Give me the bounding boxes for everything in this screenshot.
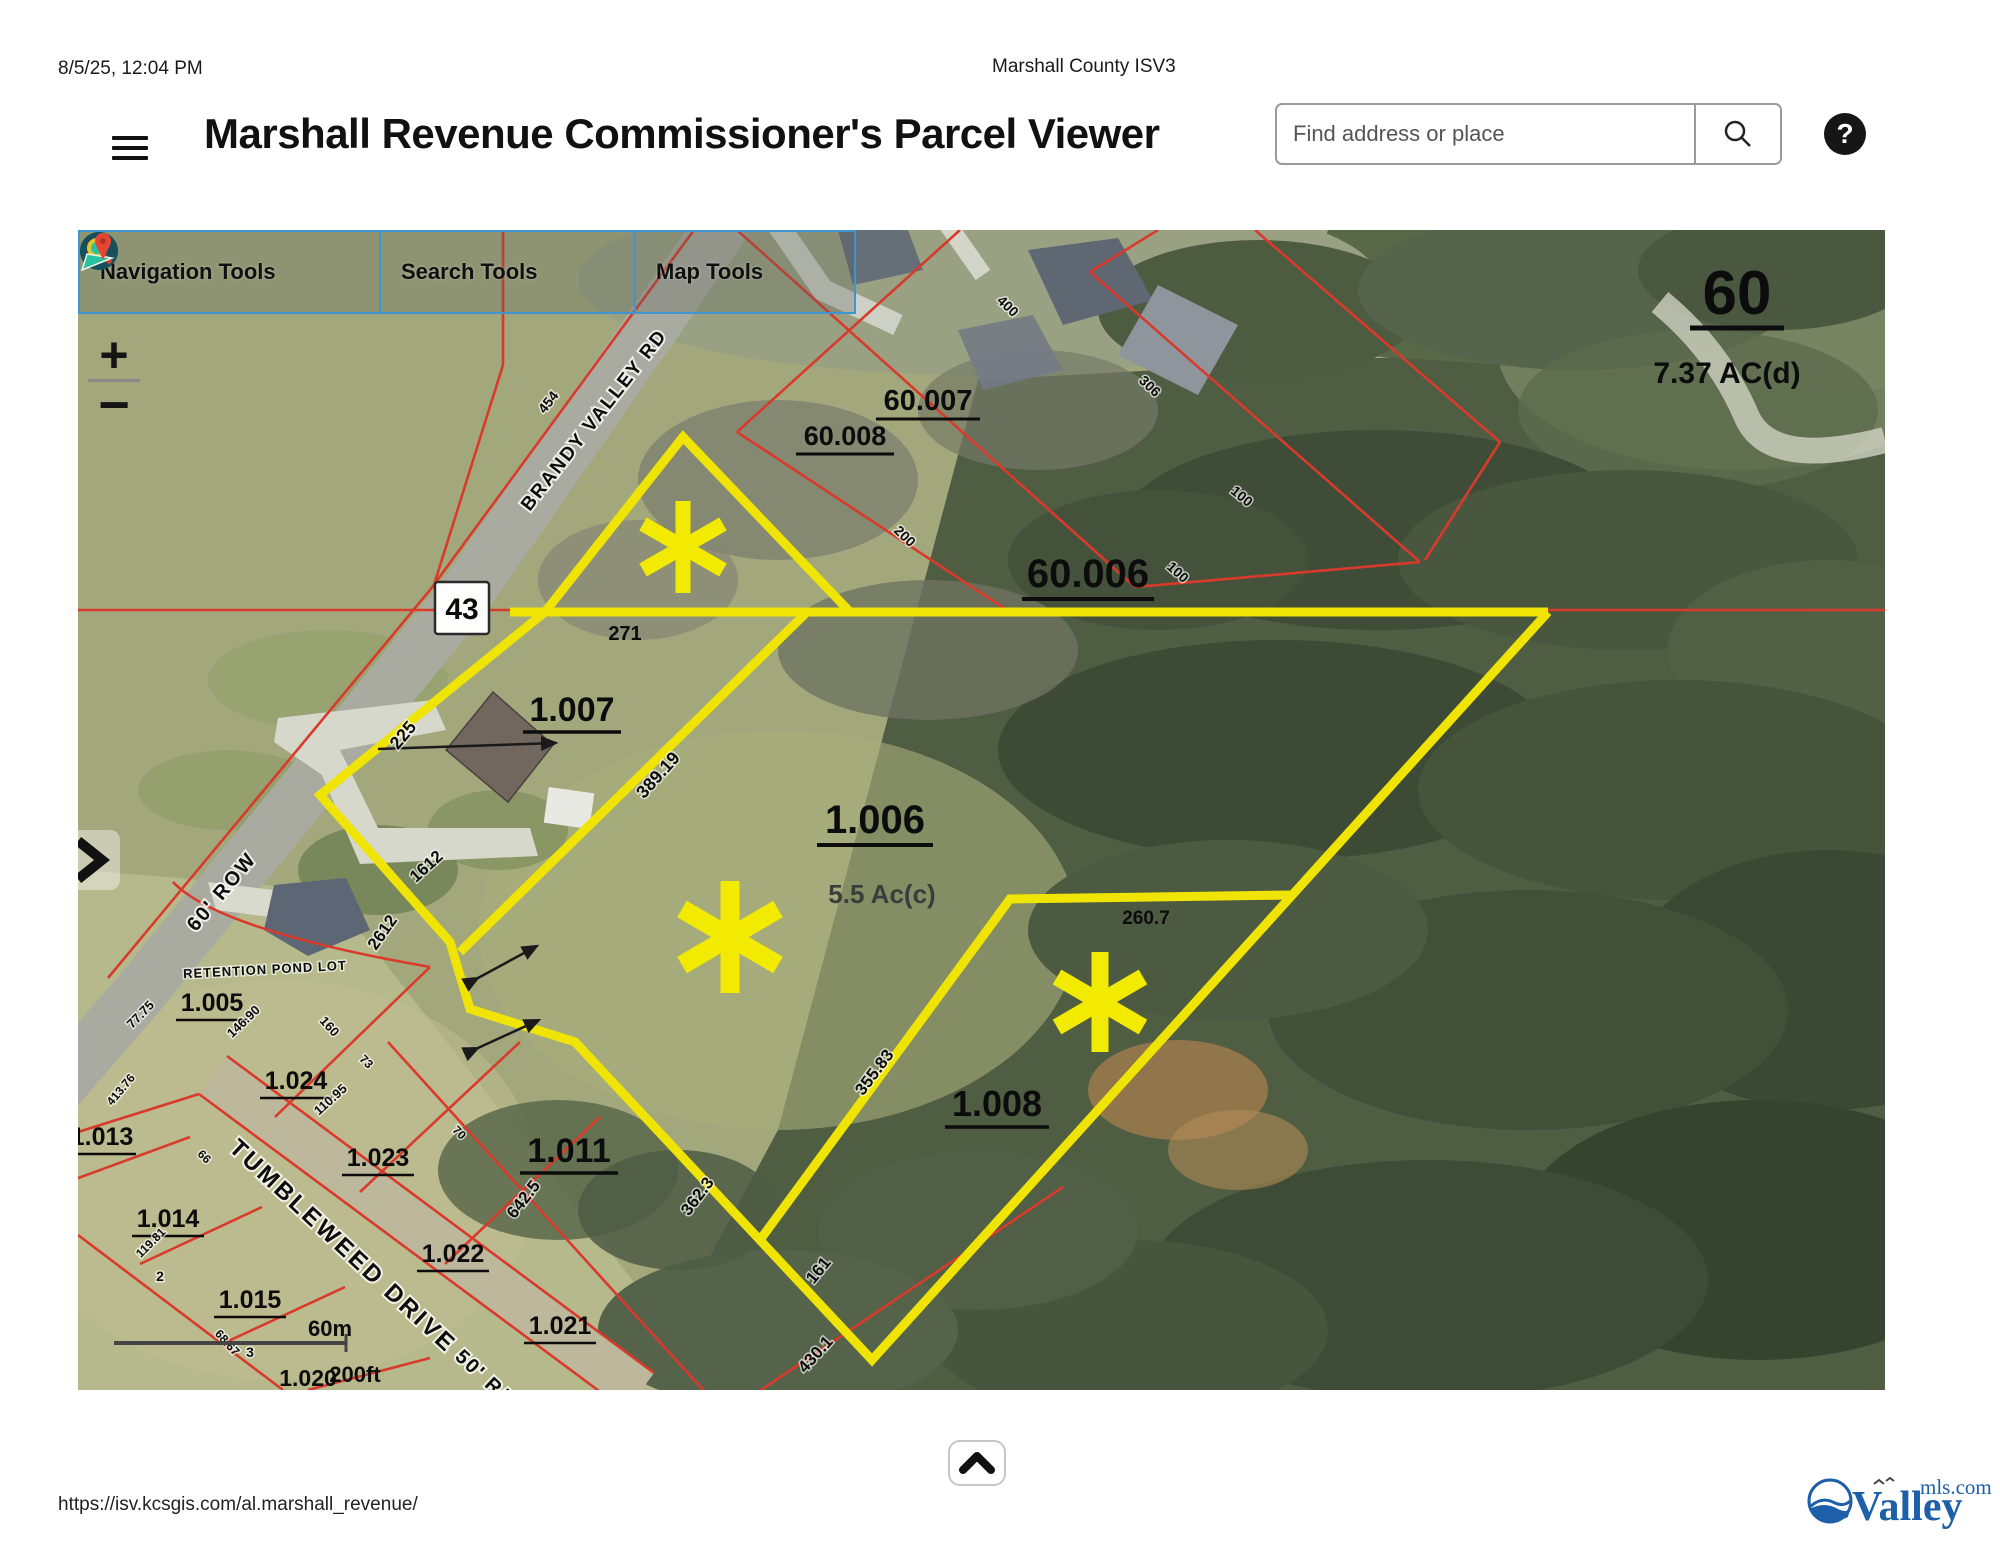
logo-mls-text: mls.com: [1920, 1475, 1992, 1499]
parcel-label-1013: 1.013: [78, 1123, 133, 1151]
parcel-label-1015: 1.015: [219, 1286, 282, 1314]
zoom-out-button[interactable]: −: [86, 384, 142, 426]
print-datetime: 8/5/25, 12:04 PM: [58, 58, 203, 80]
parcel-label-1005: 1.005: [181, 989, 244, 1017]
help-icon: ?: [1836, 118, 1853, 150]
acreage-label-737: 7.37 AC(d): [1653, 357, 1800, 390]
chevron-up-icon: [950, 1442, 1004, 1482]
footer-url: https://isv.kcsgis.com/al.marshall_reven…: [58, 1494, 418, 1516]
page-title: Marshall Revenue Commissioner's Parcel V…: [204, 110, 1160, 158]
highway-shield-43: 43: [435, 582, 489, 634]
acreage-label-55: 5.5 Ac(c): [828, 879, 935, 909]
parcel-label-60006: 60.006: [1027, 552, 1149, 596]
search-input[interactable]: [1277, 105, 1694, 163]
parcel-label-60: 60: [1703, 259, 1772, 328]
parcel-label-1006: 1.006: [825, 798, 925, 842]
parcel-label-1007: 1.007: [529, 691, 614, 729]
parcel-label-1011: 1.011: [527, 1132, 610, 1170]
parcel-label-1008: 1.008: [952, 1083, 1042, 1124]
parcel-label-1020: 1.020: [279, 1365, 337, 1390]
zoom-control: + −: [86, 334, 142, 428]
map-toolbar: Navigation Tools Search Tools Map Tools: [78, 230, 856, 314]
zoom-in-button[interactable]: +: [86, 334, 142, 376]
dim-271: 271: [608, 623, 641, 645]
page: 8/5/25, 12:04 PM Marshall County ISV3 Ma…: [0, 0, 2000, 1545]
search-tools-button[interactable]: Search Tools: [379, 230, 636, 314]
lot-number-3: 3: [246, 1344, 254, 1360]
navigation-tools-label: Navigation Tools: [100, 259, 276, 285]
map-tools-icon: [78, 230, 124, 274]
highway-shield-label: 43: [445, 593, 478, 626]
print-doc-title: Marshall County ISV3: [992, 56, 1176, 78]
scale-imperial: 200ft: [329, 1362, 381, 1387]
parcel-label-1023: 1.023: [347, 1144, 410, 1172]
search-button[interactable]: [1694, 105, 1780, 163]
lot-number-2: 2: [156, 1268, 164, 1284]
open-panel-button[interactable]: [78, 830, 120, 890]
search-tools-label: Search Tools: [401, 259, 538, 285]
chevron-right-icon: [78, 830, 120, 890]
menu-hamburger-icon[interactable]: [112, 136, 148, 160]
parcel-label-1024: 1.024: [265, 1067, 328, 1095]
dim-2607: 260.7: [1122, 908, 1170, 929]
map-tools-button[interactable]: Map Tools: [634, 230, 856, 314]
search-box: [1275, 103, 1782, 165]
parcel-label-60007: 60.007: [884, 385, 973, 417]
parcel-label-1014: 1.014: [137, 1205, 200, 1233]
help-button[interactable]: ?: [1824, 113, 1866, 155]
aerial-map: 43 60 7.37 AC(d) 60.007 60.008 60.006 1.…: [78, 230, 1885, 1390]
map-tools-label: Map Tools: [656, 259, 763, 285]
search-icon: [1721, 117, 1755, 151]
valleymls-logo: Valley mls.com: [1802, 1468, 1998, 1539]
collapse-panel-button[interactable]: [948, 1440, 1006, 1486]
map-viewport[interactable]: 43 60 7.37 AC(d) 60.007 60.008 60.006 1.…: [78, 230, 1885, 1390]
parcel-label-1022: 1.022: [422, 1240, 485, 1268]
parcel-label-60008: 60.008: [804, 421, 887, 451]
parcel-label-1021: 1.021: [529, 1312, 592, 1340]
scale-metric: 60m: [308, 1316, 352, 1341]
